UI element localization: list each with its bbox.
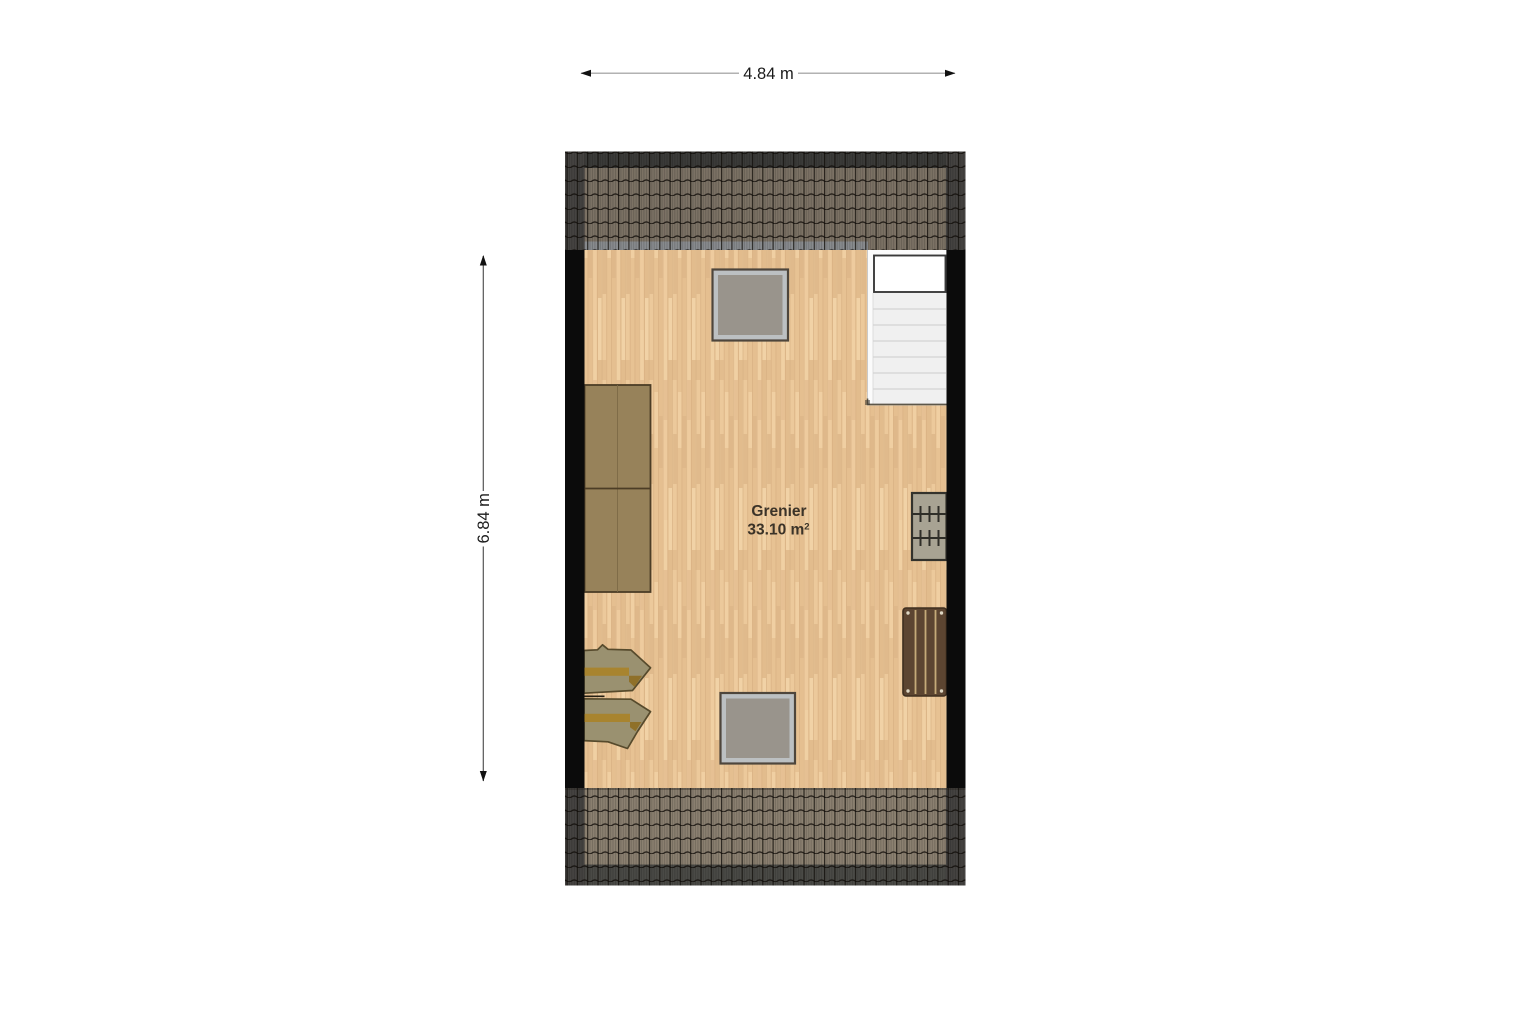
svg-text:4.84 m: 4.84 m xyxy=(743,65,793,83)
svg-text:33.10 m2: 33.10 m2 xyxy=(747,522,809,539)
svg-text:6.84 m: 6.84 m xyxy=(475,493,493,543)
svg-text:Grenier: Grenier xyxy=(751,503,806,520)
